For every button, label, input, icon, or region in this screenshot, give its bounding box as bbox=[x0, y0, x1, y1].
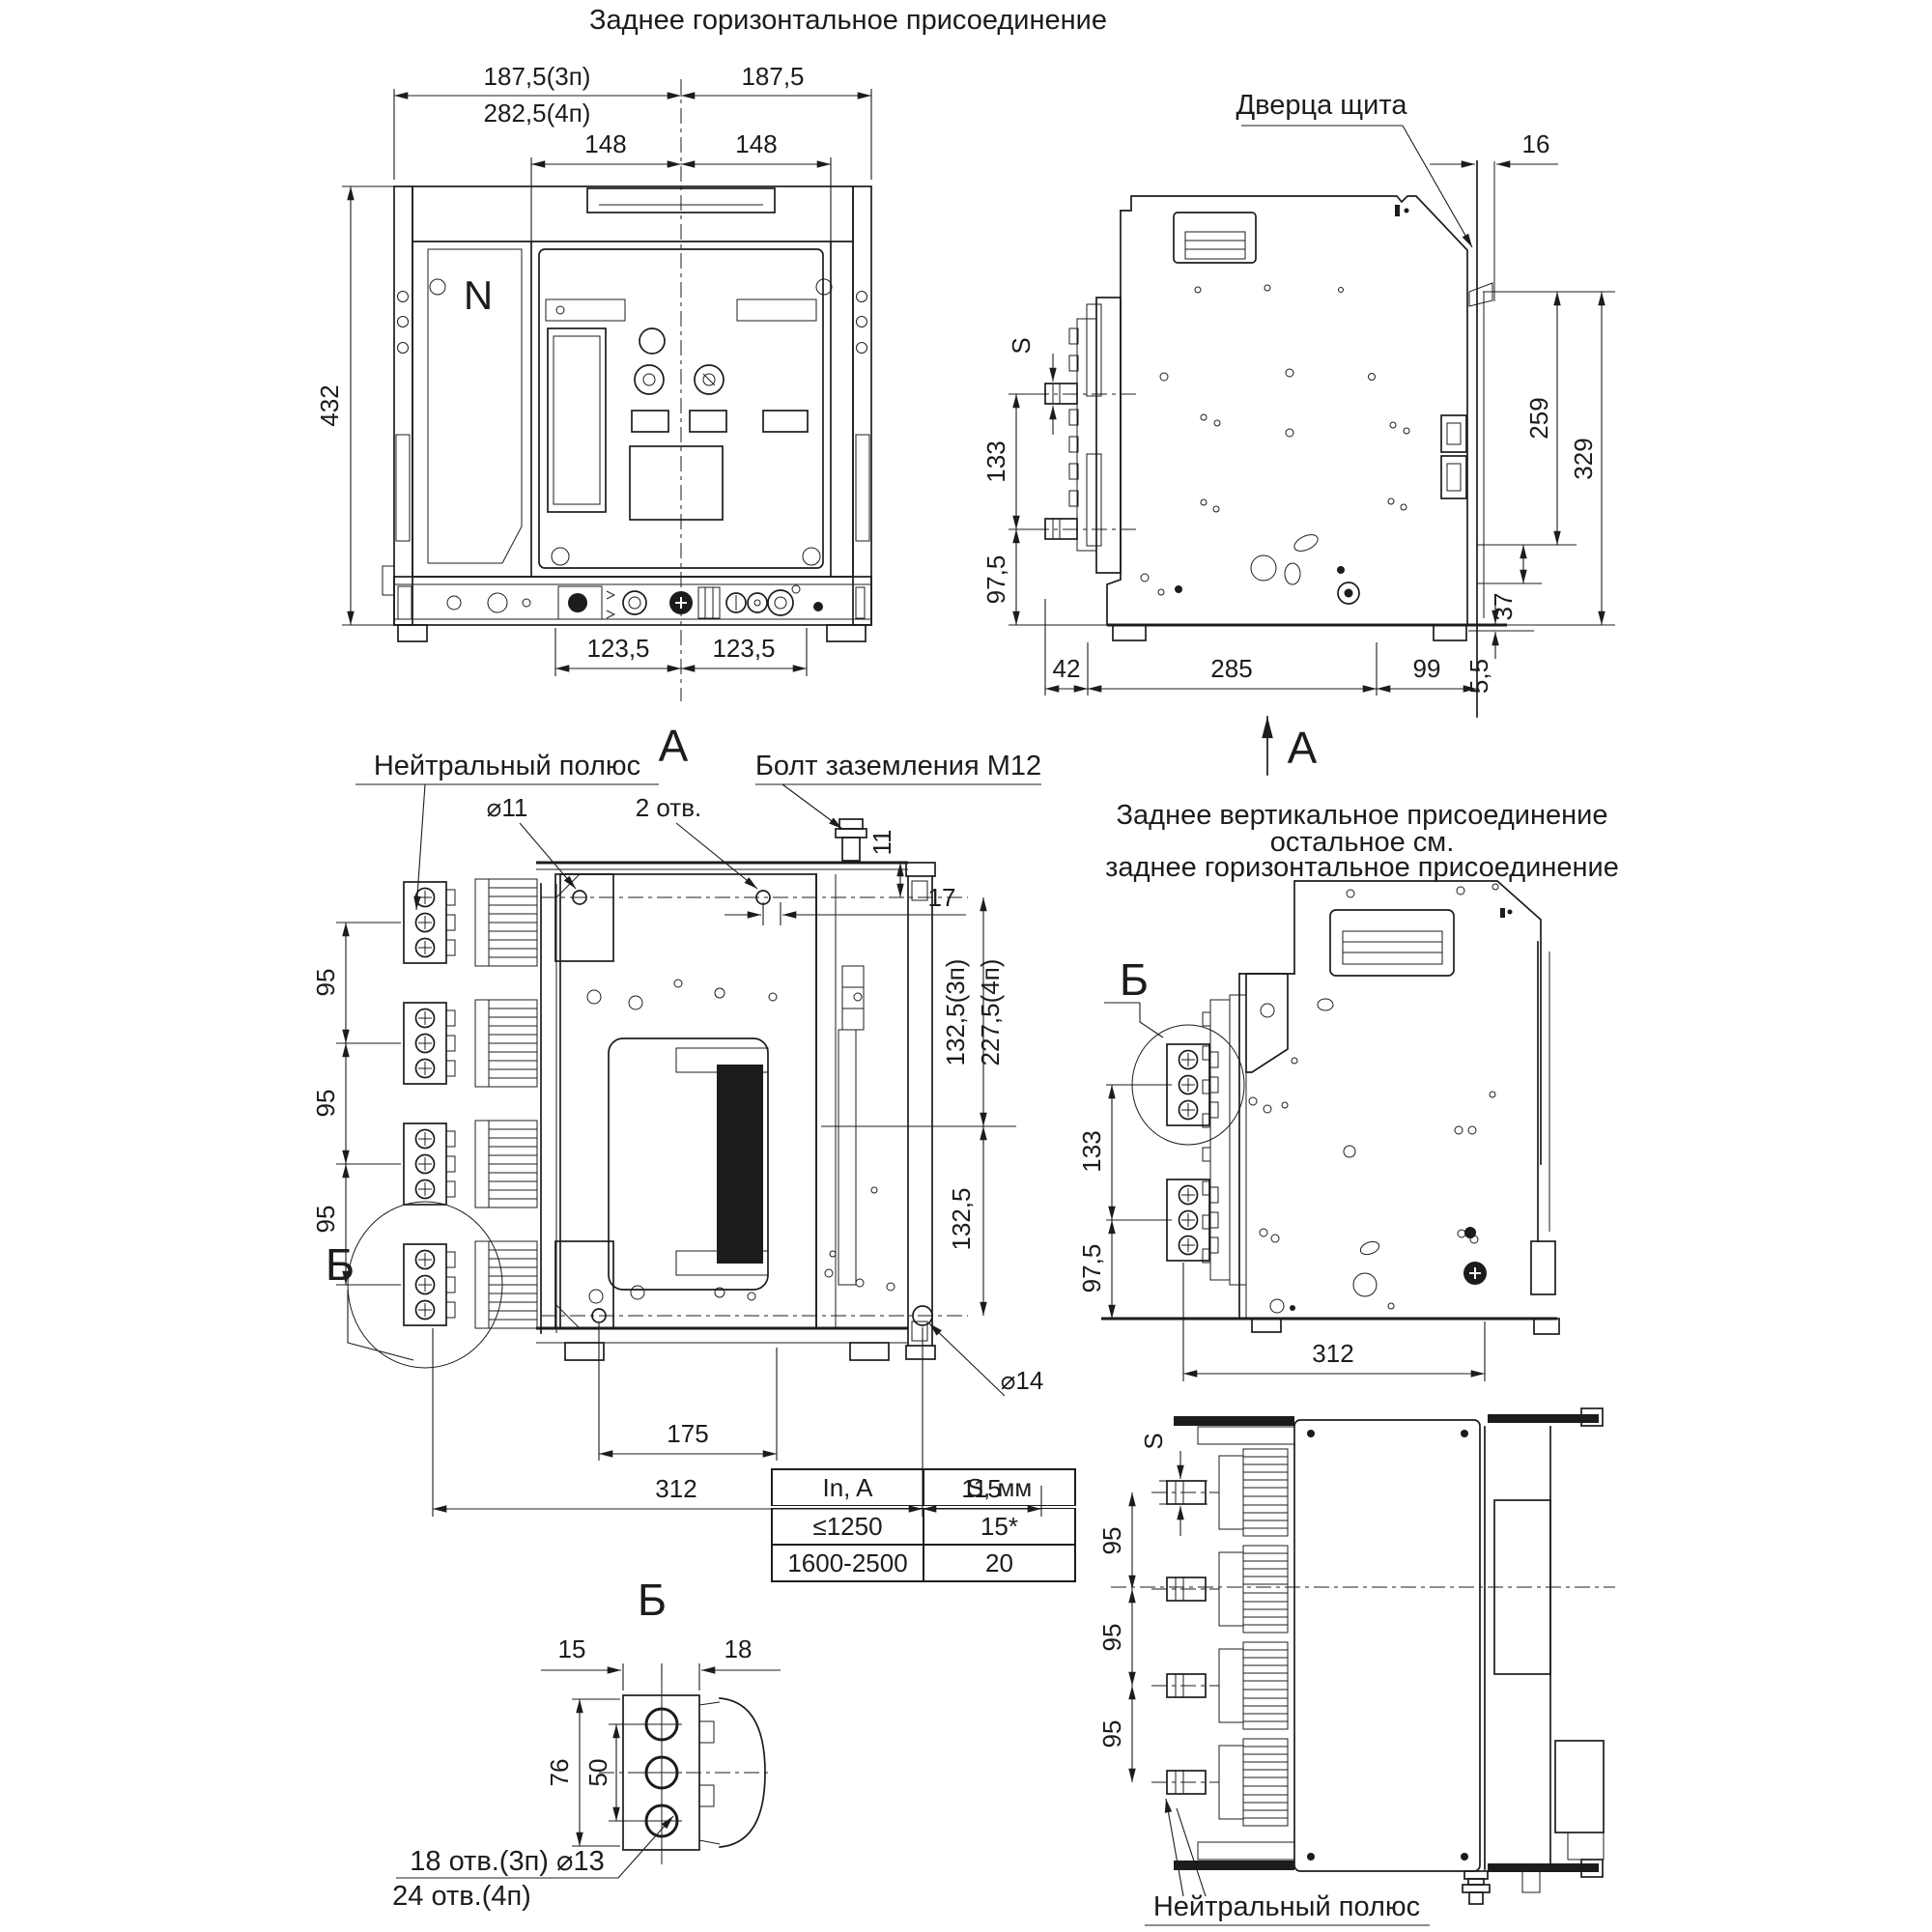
dim-label-95-2: 95 bbox=[311, 1090, 340, 1118]
dim-label-16: 16 bbox=[1522, 129, 1550, 158]
dim-label-432: 432 bbox=[315, 384, 344, 426]
dim-label-95-3: 95 bbox=[311, 1206, 340, 1234]
detail-b-marker: Б bbox=[326, 1239, 355, 1290]
dim-label-187-3p: 187,5(3п) bbox=[484, 62, 591, 91]
dim-label-175: 175 bbox=[667, 1419, 708, 1448]
table-cell-in-2: 1600-2500 bbox=[772, 1545, 923, 1581]
dim-label-282-4p: 282,5(4п) bbox=[484, 99, 591, 128]
dim-label-123-right: 123,5 bbox=[712, 634, 775, 663]
dim-label-s-top: S bbox=[1139, 1433, 1168, 1449]
dim-label-18: 18 bbox=[724, 1634, 753, 1663]
dim-label-97-vertical: 97,5 bbox=[1077, 1244, 1106, 1293]
vertical-view-drawing bbox=[1101, 881, 1559, 1334]
holes-note-4p: 24 отв.(4п) bbox=[392, 1881, 531, 1912]
view-a-title: А bbox=[659, 721, 689, 771]
vertical-view-title-3: заднее горизонтальное присоединение bbox=[1105, 852, 1619, 883]
hole-dia11-label: ⌀11 bbox=[487, 793, 528, 822]
dim-label-15: 15 bbox=[558, 1634, 586, 1663]
dim-label-259: 259 bbox=[1524, 397, 1553, 439]
side-view-drawing bbox=[1034, 161, 1507, 717]
table-cell-s-1: 15* bbox=[923, 1507, 1075, 1545]
dim-label-132-3p: 132,5(3п) bbox=[941, 959, 970, 1066]
neutral-pole-marking: N bbox=[464, 272, 493, 318]
detail-b-marker-vertical: Б bbox=[1120, 954, 1149, 1005]
dim-label-99: 99 bbox=[1413, 654, 1441, 683]
rear-view-drawing bbox=[348, 819, 968, 1368]
page-title: Заднее горизонтальное присоединение bbox=[589, 5, 1107, 36]
door-label: Дверца щита bbox=[1236, 90, 1408, 121]
dim-label-95-1: 95 bbox=[311, 969, 340, 997]
table-header-row: In, A S, мм bbox=[772, 1469, 1075, 1507]
neutral-pole-label: Нейтральный полюс bbox=[374, 751, 640, 781]
dim-label-148-right: 148 bbox=[735, 129, 777, 158]
side-view-dimensions: Дверца щита 16 S 133 97,5 259 329 37 5,5 bbox=[981, 90, 1615, 775]
rear-view-dimensions: Нейтральный полюс Болт заземления М12 ⌀1… bbox=[311, 751, 1043, 1517]
dim-label-187-right: 187,5 bbox=[741, 62, 804, 91]
dim-label-312: 312 bbox=[655, 1474, 696, 1503]
top-view-drawing bbox=[1111, 1408, 1615, 1904]
table-cell-in-1: ≤1250 bbox=[772, 1507, 923, 1545]
table-cell-s-2: 20 bbox=[923, 1545, 1075, 1581]
dim-label-50: 50 bbox=[583, 1759, 612, 1787]
top-view-dimensions: S 95 95 95 Нейтральный полюс bbox=[1097, 1433, 1430, 1925]
current-thickness-table: In, A S, мм ≤1250 15* 1600-2500 20 bbox=[771, 1468, 1076, 1582]
dim-label-312-vertical: 312 bbox=[1312, 1339, 1353, 1368]
dim-label-17: 17 bbox=[928, 883, 956, 912]
dim-label-133-vertical: 133 bbox=[1077, 1130, 1106, 1172]
dim-label-95-top-1: 95 bbox=[1097, 1527, 1126, 1555]
dim-label-95-top-2: 95 bbox=[1097, 1624, 1126, 1652]
drawing-page: Заднее горизонтальное присоединение N bbox=[0, 0, 1932, 1932]
dim-label-148-left: 148 bbox=[584, 129, 626, 158]
front-view-drawing: N bbox=[383, 79, 871, 701]
dim-label-227-4p: 227,5(4п) bbox=[976, 959, 1005, 1066]
holes-note-3p: 18 отв.(3п) ⌀13 bbox=[410, 1846, 604, 1877]
dim-label-123-left: 123,5 bbox=[586, 634, 649, 663]
table-header-s: S, мм bbox=[923, 1469, 1075, 1507]
view-a-arrow-label: А bbox=[1288, 723, 1318, 773]
detail-b-title: Б bbox=[638, 1575, 667, 1625]
dim-label-133: 133 bbox=[981, 440, 1010, 482]
holes2-label: 2 отв. bbox=[636, 793, 702, 822]
dim-label-97: 97,5 bbox=[981, 555, 1010, 605]
table-header-in: In, A bbox=[772, 1469, 923, 1507]
dim-label-76: 76 bbox=[545, 1759, 574, 1787]
front-view-dimensions: 432 187,5(3п) 282,5(4п) 187,5 148 148 12… bbox=[315, 62, 871, 771]
hole-dia14-label: ⌀14 bbox=[1001, 1366, 1044, 1395]
dim-label-42: 42 bbox=[1053, 654, 1081, 683]
dim-label-95-top-3: 95 bbox=[1097, 1720, 1126, 1748]
detail-b-drawing: Б 15 18 76 50 18 отв.(3п) ⌀13 24 отв.(4п… bbox=[392, 1575, 781, 1912]
dim-label-285: 285 bbox=[1210, 654, 1252, 683]
table-row: ≤1250 15* bbox=[772, 1507, 1075, 1545]
dim-label-11: 11 bbox=[867, 830, 896, 856]
dim-label-37: 37 bbox=[1489, 593, 1518, 621]
ground-bolt-label: Болт заземления М12 bbox=[755, 751, 1041, 781]
dim-label-329: 329 bbox=[1569, 438, 1598, 479]
drawing-canvas: Заднее горизонтальное присоединение N bbox=[0, 0, 1932, 1932]
dim-label-132: 132,5 bbox=[947, 1187, 976, 1250]
table-row: 1600-2500 20 bbox=[772, 1545, 1075, 1581]
neutral-pole-label-top: Нейтральный полюс bbox=[1153, 1891, 1420, 1922]
dim-label-s: S bbox=[1007, 337, 1036, 354]
